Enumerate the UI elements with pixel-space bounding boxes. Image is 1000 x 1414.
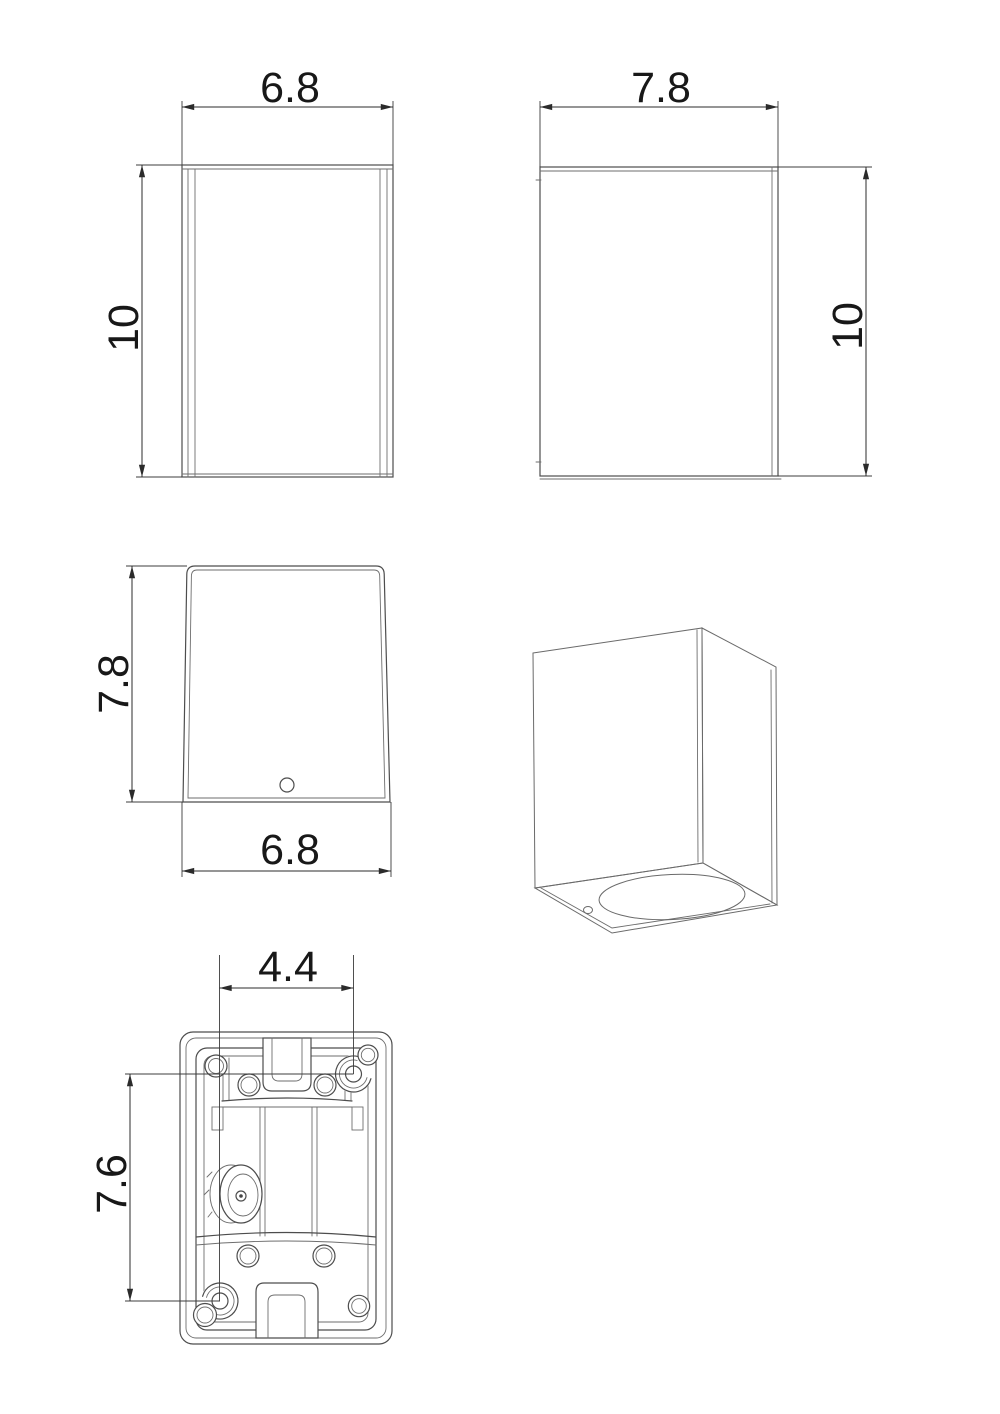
iso-screw-hole bbox=[584, 907, 593, 914]
dim-label-side-height: 10 bbox=[824, 302, 872, 350]
cable-notch-bottom bbox=[256, 1283, 318, 1338]
dim-label-top-width: 6.8 bbox=[260, 826, 320, 874]
mount-lower-rail bbox=[196, 1233, 376, 1238]
knockout-front bbox=[220, 1165, 262, 1223]
front-outline bbox=[182, 165, 393, 477]
drawing-page: 6.8 10 7.8 10 7.8 6.8 bbox=[0, 0, 1000, 1414]
dim-label-side-depth: 7.8 bbox=[631, 64, 691, 112]
front-view: 6.8 10 bbox=[100, 64, 393, 477]
technical-drawing: 6.8 10 7.8 10 7.8 6.8 bbox=[0, 0, 1000, 1414]
dim-label-front-width: 6.8 bbox=[260, 64, 320, 112]
iso-right-face bbox=[702, 628, 777, 905]
top-view: 7.8 6.8 bbox=[90, 566, 391, 877]
dim-label-top-depth: 7.8 bbox=[90, 654, 138, 714]
iso-left-face bbox=[533, 628, 703, 888]
isometric-view bbox=[533, 628, 777, 933]
top-inner-line bbox=[188, 570, 385, 798]
top-outline bbox=[183, 566, 390, 802]
dim-label-hole-spacing-x: 4.4 bbox=[258, 943, 318, 991]
iso-bottom-face bbox=[535, 863, 777, 933]
dim-label-front-height: 10 bbox=[100, 304, 148, 352]
side-outline bbox=[540, 167, 778, 476]
cable-notch-top bbox=[263, 1038, 311, 1091]
iso-light-aperture bbox=[598, 871, 746, 922]
mount-center-ribs bbox=[260, 1107, 317, 1236]
front-left-edge-lines bbox=[188, 169, 195, 477]
dim-label-hole-spacing-y: 7.6 bbox=[88, 1154, 136, 1214]
side-view: 7.8 10 bbox=[536, 64, 872, 479]
mounting-view: 4.4 7.6 bbox=[88, 943, 392, 1344]
front-right-edge-lines bbox=[380, 169, 387, 477]
mount-top-rail bbox=[222, 1098, 352, 1101]
top-drain-hole bbox=[280, 778, 294, 792]
